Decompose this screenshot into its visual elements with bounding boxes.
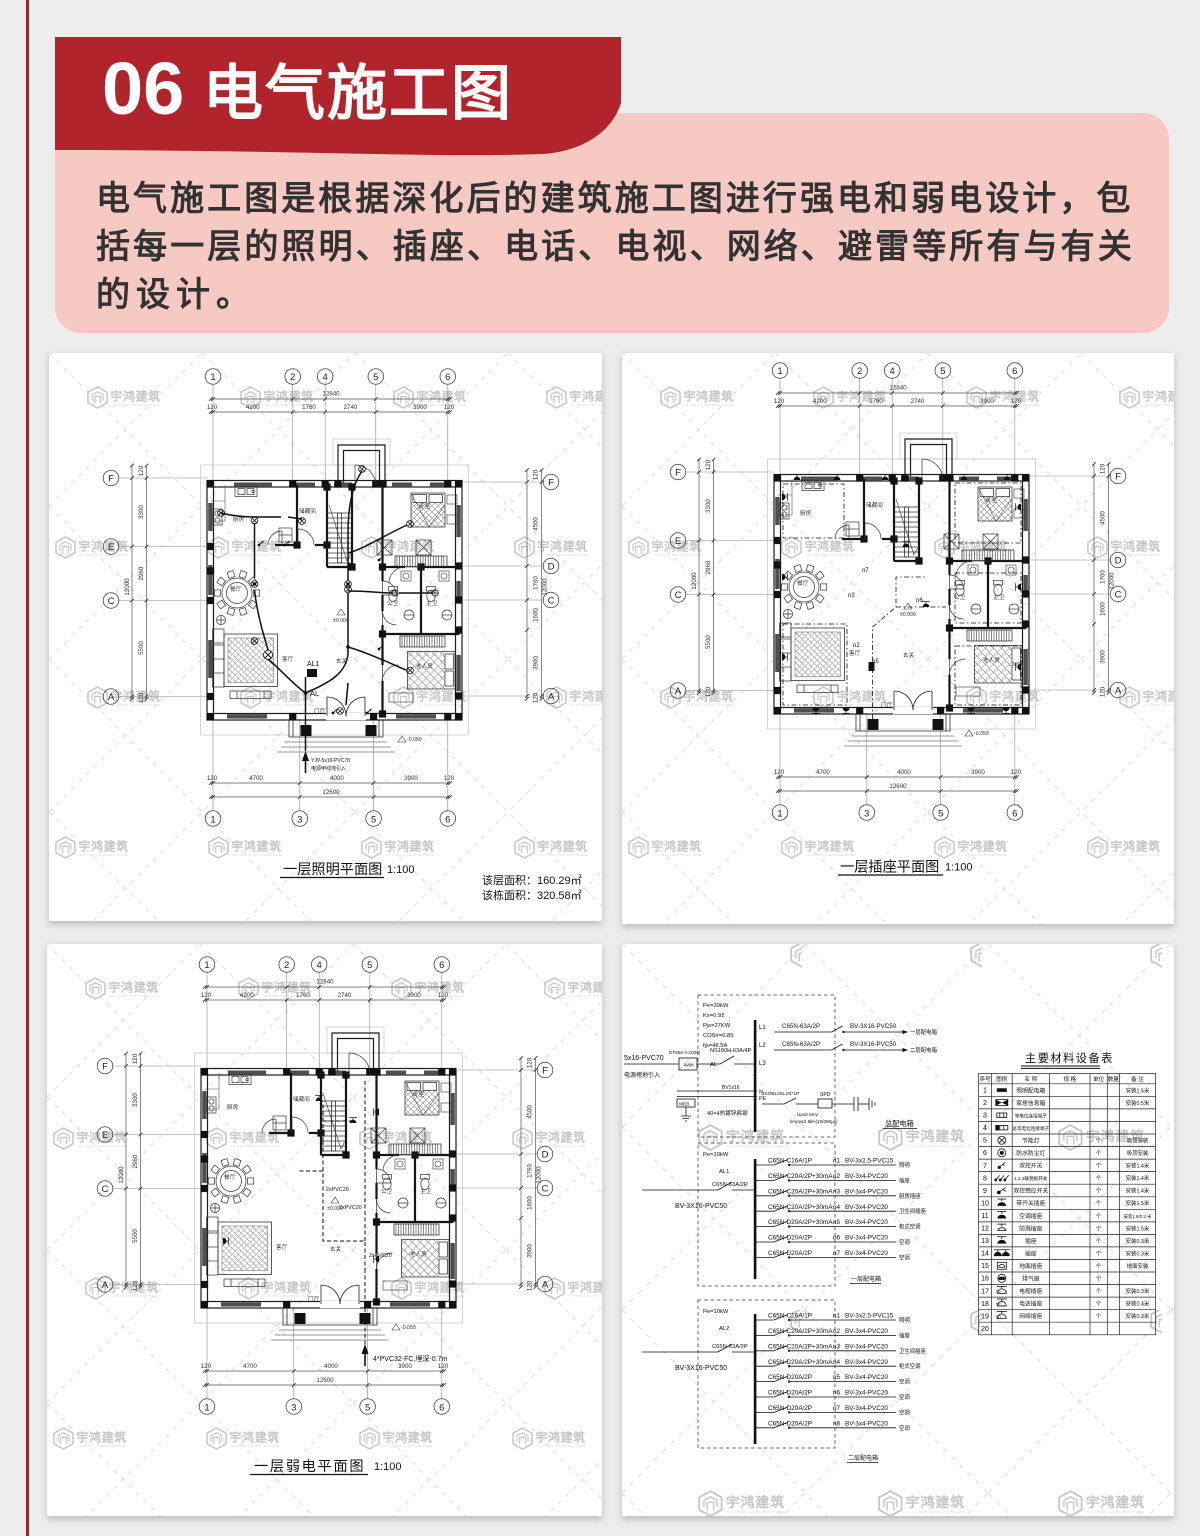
svg-text:总等电位连接端子: 总等电位连接端子 bbox=[1012, 1125, 1049, 1132]
svg-text:C65N-63A/2P: C65N-63A/2P bbox=[712, 1344, 748, 1350]
svg-text:个: 个 bbox=[1096, 1276, 1102, 1283]
svg-text:C65N-C16A/1P: C65N-C16A/1P bbox=[768, 1313, 812, 1320]
svg-text:吸顶安装: 吸顶安装 bbox=[1127, 1149, 1149, 1157]
svg-text:规 格: 规 格 bbox=[1063, 1075, 1076, 1083]
svg-text:安装0.5米: 安装0.5米 bbox=[1126, 1099, 1150, 1107]
svg-text:n2: n2 bbox=[853, 643, 860, 649]
svg-text:一层配电箱: 一层配电箱 bbox=[910, 1028, 938, 1036]
svg-text:TO: TO bbox=[996, 1314, 1001, 1319]
svg-text:插座: 插座 bbox=[899, 1176, 910, 1184]
svg-text:电话插座: 电话插座 bbox=[1019, 1300, 1042, 1308]
svg-text:AL: AL bbox=[710, 1062, 718, 1068]
svg-text:备 注: 备 注 bbox=[1131, 1075, 1144, 1083]
svg-text:BV-3x4-PVC20: BV-3x4-PVC20 bbox=[845, 1359, 888, 1366]
svg-text:6: 6 bbox=[983, 1150, 987, 1157]
svg-text:厨房插座: 厨房插座 bbox=[899, 1192, 921, 1200]
svg-text:电视插座: 电视插座 bbox=[1019, 1287, 1042, 1295]
svg-text:2xPVC20: 2xPVC20 bbox=[369, 1253, 392, 1259]
svg-text:12: 12 bbox=[981, 1226, 989, 1233]
svg-text:C65N-D20A/2P: C65N-D20A/2P bbox=[768, 1390, 812, 1397]
svg-text:个: 个 bbox=[1096, 1150, 1102, 1157]
svg-text:空调: 空调 bbox=[899, 1393, 910, 1401]
svg-text:9: 9 bbox=[983, 1188, 987, 1195]
svg-text:安装0.3米: 安装0.3米 bbox=[1126, 1300, 1150, 1308]
svg-text:AL1: AL1 bbox=[307, 661, 320, 668]
svg-text:网络插座: 网络插座 bbox=[1019, 1312, 1042, 1320]
svg-text:n5: n5 bbox=[833, 1219, 841, 1226]
svg-text:BV-3x4-PVC20: BV-3x4-PVC20 bbox=[845, 1204, 888, 1211]
svg-text:安装1.8/0.3 米: 安装1.8/0.3 米 bbox=[1124, 1213, 1152, 1220]
svg-text:C65N-D20A/2P+30mA: C65N-D20A/2P+30mA bbox=[768, 1359, 833, 1366]
svg-text:BV-3x4-PVC20: BV-3x4-PVC20 bbox=[845, 1420, 888, 1427]
svg-text:安装1.4米: 安装1.4米 bbox=[1126, 1162, 1150, 1170]
svg-text:Up≤2.5KV: Up≤2.5KV bbox=[797, 1112, 819, 1117]
svg-text:照明: 照明 bbox=[899, 1317, 910, 1324]
svg-text:n6: n6 bbox=[833, 1235, 841, 1242]
svg-text:17: 17 bbox=[981, 1288, 989, 1295]
svg-text:DT862-4-20(N): DT862-4-20(N) bbox=[669, 1050, 700, 1055]
svg-text:1:100: 1:100 bbox=[374, 1461, 402, 1473]
svg-text:照明: 照明 bbox=[899, 1162, 910, 1169]
svg-text:13: 13 bbox=[981, 1238, 989, 1245]
svg-text:5: 5 bbox=[983, 1138, 987, 1145]
svg-text:名 称: 名 称 bbox=[1024, 1075, 1037, 1083]
svg-text:kWh: kWh bbox=[684, 1063, 694, 1069]
svg-text:n3: n3 bbox=[833, 1188, 841, 1195]
svg-text:2: 2 bbox=[983, 1100, 987, 1107]
svg-text:8: 8 bbox=[983, 1175, 987, 1182]
svg-text:安装0.3米: 安装0.3米 bbox=[1126, 1237, 1150, 1245]
svg-text:Kx=0.92: Kx=0.92 bbox=[703, 1013, 724, 1019]
svg-text:安装0.3米: 安装0.3米 bbox=[1126, 1249, 1150, 1257]
svg-text:安装0.3米: 安装0.3米 bbox=[1126, 1312, 1150, 1320]
svg-text:安装1.5米: 安装1.5米 bbox=[1126, 1224, 1150, 1232]
svg-text:15: 15 bbox=[981, 1263, 989, 1270]
svg-text:AL: AL bbox=[310, 689, 319, 698]
svg-text:19: 19 bbox=[981, 1313, 989, 1320]
svg-text:安装0.3米: 安装0.3米 bbox=[1126, 1287, 1150, 1295]
svg-text:地面安装: 地面安装 bbox=[1127, 1262, 1149, 1270]
svg-text:单位: 单位 bbox=[1093, 1075, 1105, 1083]
svg-text:n4: n4 bbox=[833, 1204, 841, 1211]
svg-text:C65N-D20A/2P: C65N-D20A/2P bbox=[768, 1250, 812, 1257]
svg-text:BV-3x4-PVC20: BV-3x4-PVC20 bbox=[845, 1188, 888, 1195]
svg-text:BV-3x4-PVC20: BV-3x4-PVC20 bbox=[845, 1374, 888, 1381]
svg-text:个: 个 bbox=[1096, 1263, 1102, 1270]
svg-text:2xPVC20: 2xPVC20 bbox=[339, 1205, 362, 1211]
svg-text:电源埋地引入: 电源埋地引入 bbox=[624, 1071, 660, 1079]
svg-text:2xPVC20: 2xPVC20 bbox=[326, 1187, 349, 1193]
svg-text:10: 10 bbox=[981, 1200, 989, 1207]
svg-text:空调: 空调 bbox=[899, 1253, 910, 1261]
svg-text:C65N-D20A/2P+30mA: C65N-D20A/2P+30mA bbox=[768, 1219, 833, 1226]
svg-text:L2: L2 bbox=[759, 1043, 766, 1049]
svg-text:个: 个 bbox=[1096, 1313, 1102, 1320]
svg-text:该栋面积：320.58㎡: 该栋面积：320.58㎡ bbox=[482, 888, 582, 902]
svg-text:插座: 插座 bbox=[1025, 1249, 1037, 1257]
svg-text:照明配电箱: 照明配电箱 bbox=[1016, 1086, 1045, 1094]
svg-text:16: 16 bbox=[981, 1276, 989, 1283]
svg-text:Pe=10kW: Pe=10kW bbox=[703, 1152, 729, 1158]
svg-text:个: 个 bbox=[1096, 1250, 1102, 1257]
svg-text:BV-3X16-PVC50: BV-3X16-PVC50 bbox=[675, 1365, 727, 1372]
svg-text:一层弱电平面图: 一层弱电平面图 bbox=[254, 1459, 365, 1475]
svg-text:BV-3x4-PVC20: BV-3x4-PVC20 bbox=[845, 1173, 888, 1180]
svg-text:个: 个 bbox=[1096, 1175, 1102, 1182]
svg-text:个: 个 bbox=[1096, 1225, 1102, 1232]
svg-text:卫生间插座: 卫生间插座 bbox=[899, 1347, 927, 1355]
svg-text:n2: n2 bbox=[833, 1328, 841, 1335]
svg-text:TP: TP bbox=[996, 1301, 1001, 1306]
svg-text:n7: n7 bbox=[833, 1250, 841, 1257]
svg-text:双控开关: 双控开关 bbox=[1019, 1162, 1042, 1170]
svg-text:空调: 空调 bbox=[899, 1424, 910, 1432]
svg-text:安装1.5米: 安装1.5米 bbox=[1126, 1086, 1150, 1094]
svg-text:Iimp≥12.5kA(10/350μs): Iimp≥12.5kA(10/350μs) bbox=[790, 1119, 838, 1124]
svg-text:C65N-C20A/2P+30mA: C65N-C20A/2P+30mA bbox=[768, 1173, 833, 1180]
svg-text:个: 个 bbox=[1096, 1200, 1102, 1207]
svg-text:BV-3x4-PVC20: BV-3x4-PVC20 bbox=[845, 1390, 888, 1397]
svg-text:BV-3X16-PVC50: BV-3X16-PVC50 bbox=[850, 1023, 897, 1030]
svg-text:SPD: SPD bbox=[820, 1092, 831, 1098]
svg-text:C65N-63A/2P: C65N-63A/2P bbox=[782, 1023, 820, 1030]
svg-text:卫生间插座: 卫生间插座 bbox=[899, 1207, 927, 1215]
svg-text:个: 个 bbox=[1096, 1138, 1102, 1145]
svg-text:该层面积：160.29㎡: 该层面积：160.29㎡ bbox=[482, 873, 582, 887]
svg-text:个: 个 bbox=[1096, 1213, 1102, 1220]
svg-text:1:100: 1:100 bbox=[945, 862, 973, 874]
svg-text:1: 1 bbox=[983, 1088, 987, 1095]
svg-text:C65N-63A/2P: C65N-63A/2P bbox=[782, 1041, 820, 1048]
svg-text:C65N-C20A/2P+30mA: C65N-C20A/2P+30mA bbox=[768, 1328, 833, 1335]
svg-text:14: 14 bbox=[981, 1251, 989, 1258]
svg-text:BV-3x4-PVC20: BV-3x4-PVC20 bbox=[845, 1328, 888, 1335]
svg-text:COS#=0.85: COS#=0.85 bbox=[703, 1033, 733, 1039]
svg-text:BV-3x4-PVC20: BV-3x4-PVC20 bbox=[845, 1250, 888, 1257]
svg-text:BV-3x2.5-PVC15: BV-3x2.5-PVC15 bbox=[845, 1313, 894, 1320]
svg-text:BV-3x2.5-PVC15: BV-3x2.5-PVC15 bbox=[845, 1158, 894, 1165]
svg-text:TV: TV bbox=[996, 1289, 1001, 1294]
svg-text:C65N-D20A/2P: C65N-D20A/2P bbox=[768, 1374, 812, 1381]
svg-text:1,2,3联翘板开关: 1,2,3联翘板开关 bbox=[1014, 1175, 1048, 1182]
svg-text:Pjs=27KW: Pjs=27KW bbox=[703, 1023, 731, 1029]
svg-text:BV-3x4-PVC20: BV-3x4-PVC20 bbox=[845, 1405, 888, 1412]
svg-text:一层配电箱: 一层配电箱 bbox=[851, 1275, 881, 1283]
svg-text:BV-3x4-PVC20: BV-3x4-PVC20 bbox=[845, 1219, 888, 1226]
svg-text:L1: L1 bbox=[759, 1025, 766, 1031]
svg-text:4: 4 bbox=[983, 1125, 987, 1132]
svg-text:n3: n3 bbox=[848, 593, 855, 599]
svg-text:电源甲线地引入: 电源甲线地引入 bbox=[311, 765, 346, 772]
svg-text:C65N-D20A/2P: C65N-D20A/2P bbox=[768, 1420, 812, 1427]
svg-text:空调: 空调 bbox=[899, 1408, 910, 1416]
svg-text:40×4热镀锌扁钢: 40×4热镀锌扁钢 bbox=[707, 1109, 748, 1117]
svg-text:个: 个 bbox=[1096, 1301, 1102, 1308]
svg-text:MEB: MEB bbox=[679, 1102, 689, 1108]
svg-text:n4: n4 bbox=[833, 1359, 841, 1366]
svg-text:地面插座: 地面插座 bbox=[1019, 1262, 1042, 1270]
svg-text:n1: n1 bbox=[833, 1313, 841, 1320]
svg-text:柜式空调: 柜式空调 bbox=[899, 1223, 921, 1231]
svg-text:AL1: AL1 bbox=[719, 1169, 729, 1175]
svg-text:C65N-D20A/2P: C65N-D20A/2P bbox=[768, 1235, 812, 1242]
svg-text:总配电箱: 总配电箱 bbox=[885, 1119, 914, 1128]
svg-text:插座: 插座 bbox=[899, 1331, 910, 1339]
svg-text:BV-3X16-PVC50: BV-3X16-PVC50 bbox=[850, 1041, 897, 1048]
svg-text:YJV-5x16-PVC70: YJV-5x16-PVC70 bbox=[311, 758, 350, 764]
svg-text:个: 个 bbox=[1096, 1188, 1102, 1195]
svg-text:3: 3 bbox=[983, 1113, 987, 1120]
svg-text:11: 11 bbox=[981, 1213, 988, 1220]
svg-text:BV-3X16-PVC50: BV-3X16-PVC50 bbox=[675, 1203, 727, 1210]
svg-text:n6: n6 bbox=[833, 1390, 841, 1397]
svg-text:空调: 空调 bbox=[899, 1238, 910, 1246]
svg-text:安装1.5米: 安装1.5米 bbox=[1126, 1199, 1150, 1207]
svg-text:一层照明平面图: 一层照明平面图 bbox=[283, 862, 382, 878]
svg-text:防水防尘灯: 防水防尘灯 bbox=[1016, 1149, 1045, 1157]
svg-text:n6: n6 bbox=[916, 598, 923, 604]
svg-text:个: 个 bbox=[1096, 1288, 1102, 1295]
svg-text:n3: n3 bbox=[833, 1343, 841, 1350]
svg-text:C65N-C20A/2P+30mA: C65N-C20A/2P+30mA bbox=[768, 1204, 833, 1211]
svg-text:节能灯: 节能灯 bbox=[1022, 1137, 1040, 1145]
svg-text:BV1x16: BV1x16 bbox=[722, 1085, 740, 1091]
svg-text:Pe=10kW: Pe=10kW bbox=[703, 1309, 729, 1315]
svg-text:BV-3x4-PVC20: BV-3x4-PVC20 bbox=[845, 1343, 888, 1350]
svg-text:n1: n1 bbox=[833, 1158, 841, 1165]
svg-text:安装1.4米: 安装1.4米 bbox=[1126, 1174, 1150, 1182]
svg-text:空调插座: 空调插座 bbox=[1019, 1212, 1042, 1220]
svg-text:双控感应开关: 双控感应开关 bbox=[1013, 1187, 1048, 1195]
svg-text:BV-3x4-PVC20: BV-3x4-PVC20 bbox=[845, 1235, 888, 1242]
svg-text:二层配电箱: 二层配电箱 bbox=[910, 1046, 938, 1054]
svg-text:排气扇: 排气扇 bbox=[1022, 1275, 1040, 1283]
svg-text:18: 18 bbox=[981, 1301, 989, 1308]
svg-text:AL2: AL2 bbox=[719, 1326, 729, 1332]
svg-text:序号: 序号 bbox=[979, 1075, 991, 1083]
svg-text:家居信息箱: 家居信息箱 bbox=[1016, 1099, 1045, 1107]
svg-text:C65N-63A/2P: C65N-63A/2P bbox=[712, 1182, 748, 1188]
svg-text:C65N-C20A/2P+30mA: C65N-C20A/2P+30mA bbox=[768, 1343, 833, 1350]
svg-text:C65N-C20A/2P+30mA: C65N-C20A/2P+30mA bbox=[768, 1188, 833, 1195]
svg-text:带开关插座: 带开关插座 bbox=[1016, 1199, 1045, 1207]
svg-text:JSGBL25LJ/4*1P: JSGBL25LJ/4*1P bbox=[762, 1091, 799, 1097]
svg-text:柜式空调: 柜式空调 bbox=[899, 1362, 921, 1370]
svg-text:数量: 数量 bbox=[1108, 1075, 1120, 1083]
svg-text:n8: n8 bbox=[833, 1420, 841, 1427]
svg-text:图例: 图例 bbox=[996, 1075, 1008, 1083]
svg-text:一层插座平面图: 一层插座平面图 bbox=[840, 860, 939, 876]
svg-text:7: 7 bbox=[983, 1163, 987, 1170]
svg-text:吸顶安装: 吸顶安装 bbox=[1127, 1137, 1149, 1145]
svg-text:C65N-C16A/1P: C65N-C16A/1P bbox=[768, 1158, 812, 1165]
svg-text:5x16-PVC70: 5x16-PVC70 bbox=[624, 1055, 664, 1062]
svg-text:个: 个 bbox=[1096, 1238, 1102, 1245]
svg-text:n2: n2 bbox=[833, 1173, 841, 1180]
svg-text:主要材料设备表: 主要材料设备表 bbox=[1025, 1051, 1114, 1065]
svg-text:防溅插座: 防溅插座 bbox=[1019, 1224, 1042, 1232]
svg-text:C65N-D20A/2P: C65N-D20A/2P bbox=[768, 1405, 812, 1412]
svg-text:插座: 插座 bbox=[1025, 1237, 1037, 1245]
svg-text:安装1.4米: 安装1.4米 bbox=[1126, 1187, 1150, 1195]
svg-text:等电位连接端子: 等电位连接端子 bbox=[1015, 1112, 1048, 1119]
svg-text:4*PVC32-FC,埋深-0.7m: 4*PVC32-FC,埋深-0.7m bbox=[373, 1354, 447, 1363]
svg-text:二层配电箱: 二层配电箱 bbox=[848, 1454, 878, 1462]
svg-text:L3: L3 bbox=[759, 1061, 766, 1067]
svg-text:n7: n7 bbox=[862, 568, 869, 574]
svg-text:个: 个 bbox=[1096, 1163, 1102, 1170]
svg-text:n5: n5 bbox=[833, 1374, 841, 1381]
svg-text:Pe=30kW: Pe=30kW bbox=[703, 1003, 729, 1009]
svg-text:n7: n7 bbox=[833, 1405, 841, 1412]
svg-text:NS160H-63A/4P: NS160H-63A/4P bbox=[710, 1048, 752, 1054]
svg-text:20: 20 bbox=[981, 1326, 989, 1333]
svg-text:空调: 空调 bbox=[899, 1378, 910, 1386]
svg-text:1:100: 1:100 bbox=[387, 864, 415, 876]
